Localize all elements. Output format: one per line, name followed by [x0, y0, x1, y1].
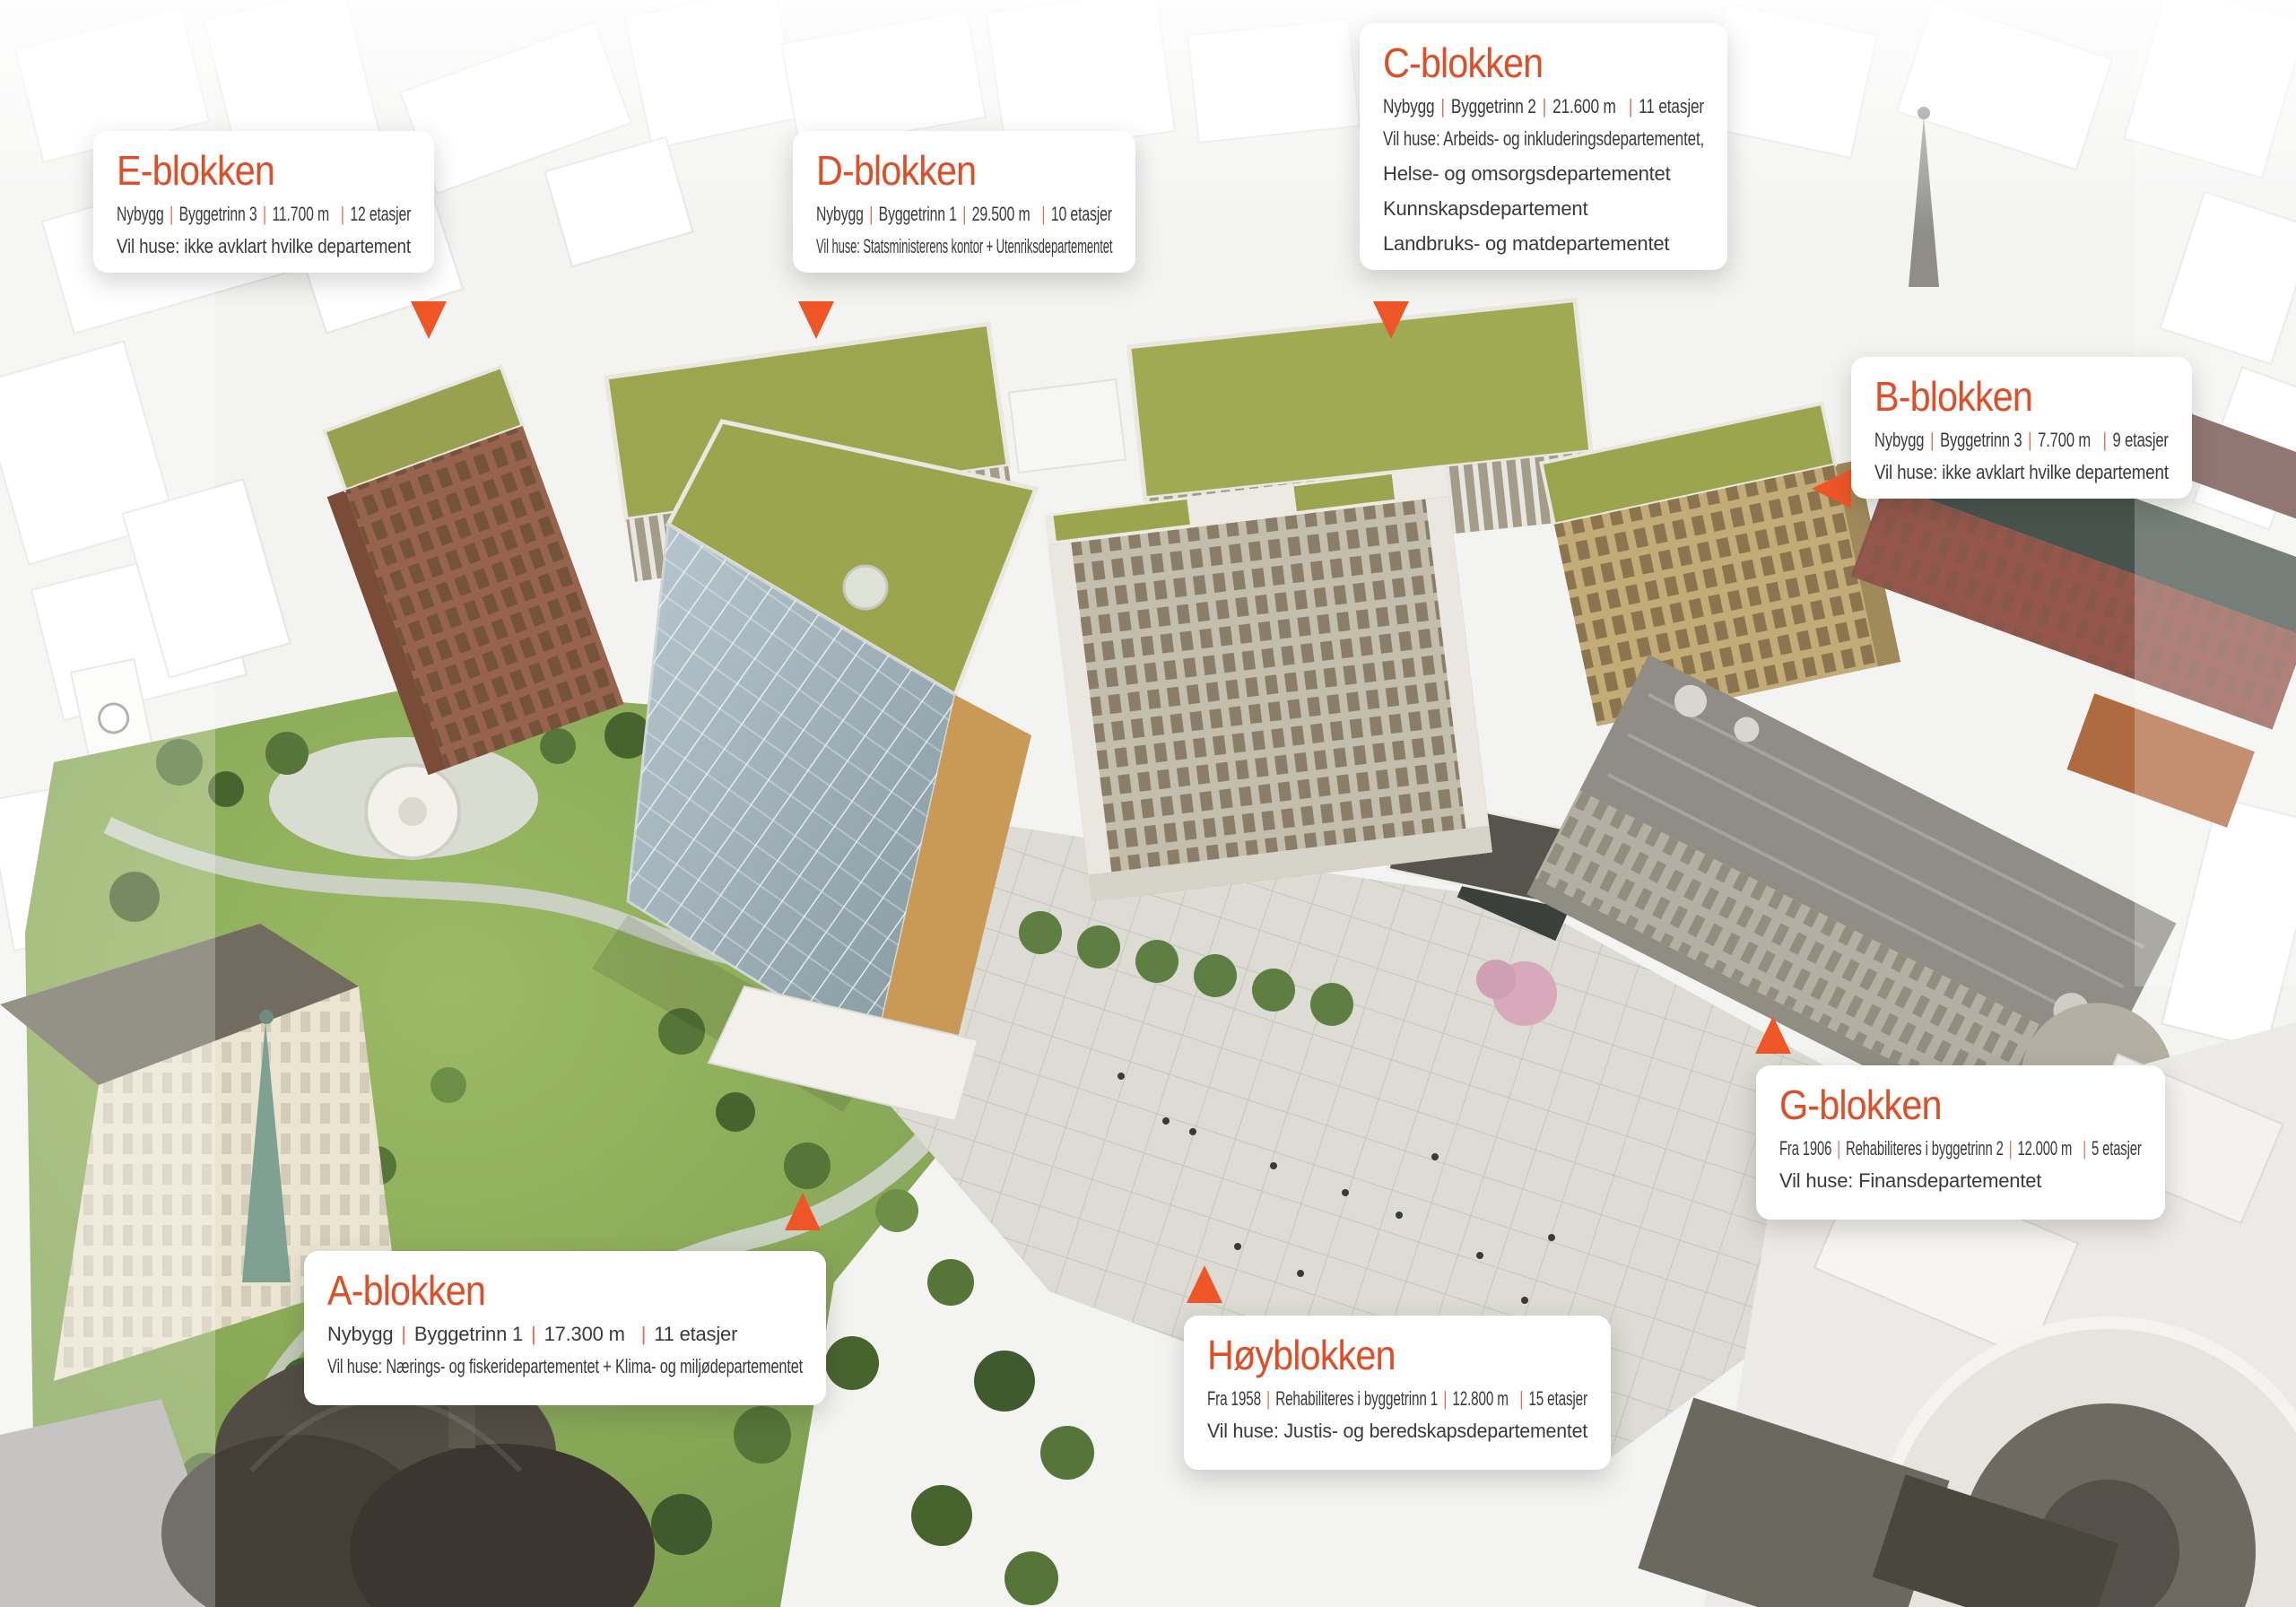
- c-blokken-specs: Nybygg|Byggetrinn 2|21.600 m|11 etasjer: [1383, 95, 1704, 118]
- hoyblokken-house: Vil huse: Justis- og beredskapsdeparteme…: [1207, 1420, 1587, 1443]
- callout-hoyblokken: Høyblokken Fra 1958|Rehabiliteres i bygg…: [1184, 1316, 1611, 1470]
- g-blokken-specs: Fra 1906|Rehabiliteres i byggetrinn 2|12…: [1779, 1137, 2142, 1160]
- d-blokken-house: Vil huse: Statsministerens kontor + Uten…: [816, 235, 1112, 258]
- a-blokken-marker-icon: [785, 1193, 821, 1230]
- c-blokken-marker-icon: [1373, 301, 1409, 339]
- a-blokken-house: Vil huse: Nærings- og fiskeridepartement…: [327, 1355, 803, 1378]
- c-blokken-house: Vil huse: Arbeids- og inkluderingsdepart…: [1383, 127, 1704, 256]
- a-blokken-specs: Nybygg|Byggetrinn 1|17.300 m|11 etasjer: [327, 1323, 737, 1346]
- e-blokken-house: Vil huse: ikke avklart hvilke departemen…: [117, 235, 411, 258]
- c-blokken-title: C-blokken: [1383, 41, 1672, 84]
- e-blokken-marker-icon: [411, 301, 447, 339]
- hoyblokken-specs: Fra 1958|Rehabiliteres i byggetrinn 1|12…: [1207, 1387, 1587, 1411]
- building-hoyblokken: [1044, 465, 1492, 902]
- d-blokken-marker-icon: [798, 301, 834, 339]
- callout-b-blokken: B-blokken Nybygg|Byggetrinn 3|7.700 m|9 …: [1851, 357, 2192, 499]
- hoyblokken-title: Høyblokken: [1207, 1333, 1550, 1377]
- b-blokken-marker-icon: [1812, 469, 1851, 508]
- g-blokken-marker-icon: [1755, 1016, 1791, 1054]
- government-quarter-infographic: E-blokken Nybygg|Byggetrinn 3|11.700 m|1…: [0, 0, 2296, 1607]
- callout-g-blokken: G-blokken Fra 1906|Rehabiliteres i bygge…: [1756, 1065, 2165, 1220]
- callout-e-blokken: E-blokken Nybygg|Byggetrinn 3|11.700 m|1…: [93, 131, 434, 273]
- d-blokken-title: D-blokken: [816, 149, 1083, 192]
- callout-a-blokken: A-blokken Nybygg|Byggetrinn 1|17.300 m|1…: [304, 1251, 826, 1405]
- b-blokken-title: B-blokken: [1874, 375, 2139, 418]
- b-blokken-house: Vil huse: ikke avklart hvilke departemen…: [1874, 461, 2169, 484]
- a-blokken-title: A-blokken: [327, 1269, 755, 1312]
- e-blokken-specs: Nybygg|Byggetrinn 3|11.700 m|12 etasjer: [117, 203, 411, 226]
- helipad: [844, 566, 887, 609]
- g-blokken-title: G-blokken: [1779, 1083, 2106, 1126]
- hoyblokken-marker-icon: [1187, 1265, 1222, 1303]
- callout-c-blokken: C-blokken Nybygg|Byggetrinn 2|21.600 m|1…: [1360, 23, 1727, 270]
- e-blokken-title: E-blokken: [117, 149, 381, 192]
- b-blokken-specs: Nybygg|Byggetrinn 3|7.700 m|9 etasjer: [1874, 429, 2169, 452]
- g-blokken-house: Vil huse: Finansdepartementet: [1779, 1169, 2142, 1193]
- callout-d-blokken: D-blokken Nybygg|Byggetrinn 1|29.500 m|1…: [793, 131, 1135, 273]
- d-blokken-specs: Nybygg|Byggetrinn 1|29.500 m|10 etasjer: [816, 203, 1112, 226]
